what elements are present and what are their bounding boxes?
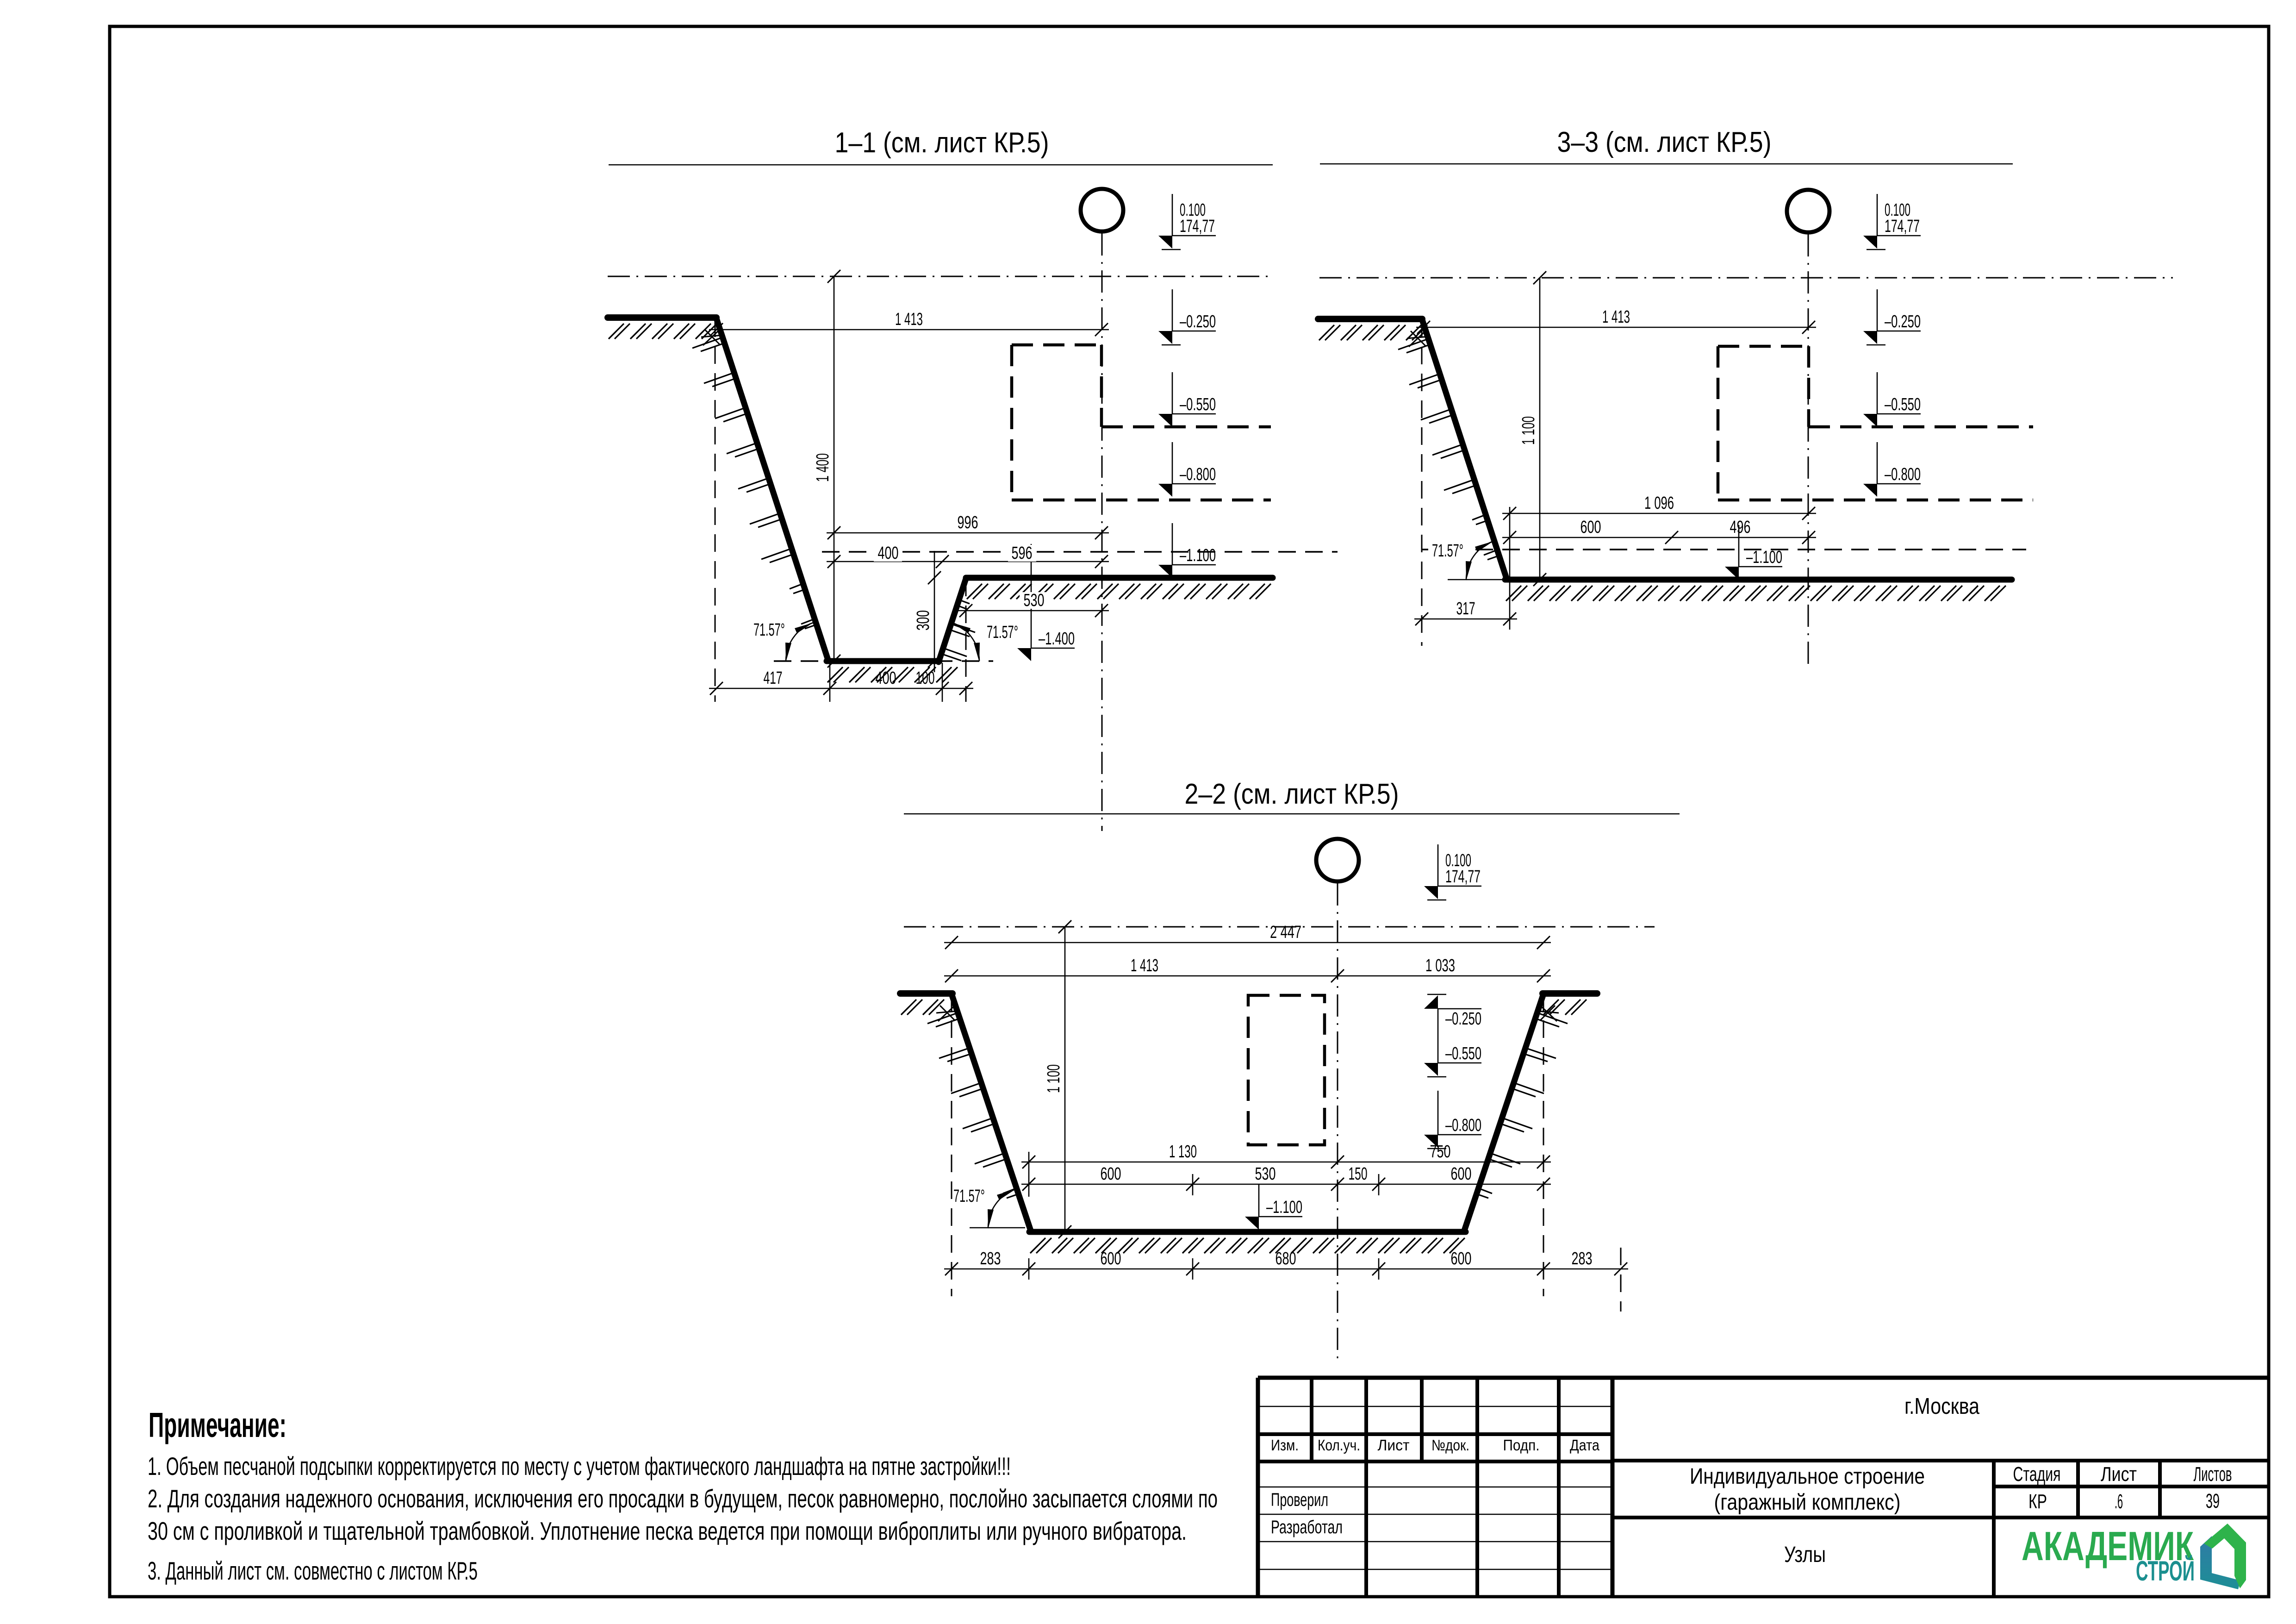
svg-text:2–2 (см. лист КР.5): 2–2 (см. лист КР.5) [1185, 778, 1399, 810]
svg-text:400: 400 [876, 668, 896, 688]
svg-text:Дата: Дата [1570, 1437, 1600, 1454]
svg-text:0.100: 0.100 [1445, 851, 1471, 870]
svg-text:596: 596 [1012, 543, 1033, 563]
svg-text:283: 283 [1572, 1249, 1593, 1268]
svg-text:1. Объем песчаной подсыпки кор: 1. Объем песчаной подсыпки корректируетс… [148, 1452, 1011, 1480]
svg-text:–0.800: –0.800 [1885, 465, 1921, 484]
svg-text:71.57°: 71.57° [953, 1187, 985, 1206]
svg-text:680: 680 [1276, 1249, 1296, 1268]
svg-text:3–3 (см. лист КР.5): 3–3 (см. лист КР.5) [1557, 126, 1772, 158]
svg-text:2 447: 2 447 [1270, 923, 1301, 942]
svg-text:–0.800: –0.800 [1445, 1116, 1481, 1135]
svg-text:Подп.: Подп. [1503, 1437, 1540, 1454]
svg-text:–0.250: –0.250 [1180, 312, 1216, 331]
svg-text:–0.250: –0.250 [1885, 312, 1921, 331]
svg-text:30 см с проливкой и тщательной: 30 см с проливкой и тщательной трамбовко… [148, 1517, 1187, 1545]
svg-text:1 413: 1 413 [895, 310, 923, 329]
svg-text:600: 600 [1451, 1249, 1472, 1268]
svg-text:496: 496 [1730, 518, 1751, 537]
svg-text:600: 600 [1580, 518, 1601, 537]
svg-text:1 096: 1 096 [1644, 493, 1674, 513]
svg-text:71.57°: 71.57° [1432, 541, 1463, 561]
svg-text:–0.550: –0.550 [1445, 1044, 1481, 1063]
svg-text:100: 100 [916, 668, 935, 688]
svg-text:750: 750 [1430, 1142, 1451, 1162]
svg-text:№док.: №док. [1431, 1437, 1469, 1454]
svg-text:Примечание:: Примечание: [149, 1405, 286, 1444]
svg-text:150: 150 [1349, 1164, 1368, 1184]
svg-text:0.100: 0.100 [1885, 200, 1910, 220]
svg-text:–0.250: –0.250 [1445, 1009, 1481, 1029]
svg-text:Лист: Лист [2101, 1463, 2137, 1486]
svg-text:3. Данный лист см. совместно с: 3. Данный лист см. совместно с листом КР… [148, 1556, 478, 1585]
svg-text:530: 530 [1024, 591, 1045, 610]
svg-text:400: 400 [878, 543, 899, 563]
svg-text:–1.400: –1.400 [1039, 629, 1075, 649]
svg-text:996: 996 [958, 513, 978, 532]
svg-text:71.57°: 71.57° [753, 620, 785, 640]
svg-text:530: 530 [1255, 1164, 1276, 1184]
svg-text:600: 600 [1101, 1164, 1121, 1184]
svg-text:600: 600 [1101, 1249, 1121, 1268]
svg-text:–1.100: –1.100 [1746, 548, 1782, 567]
svg-text:417: 417 [764, 668, 783, 688]
svg-text:–1.100: –1.100 [1266, 1198, 1302, 1217]
svg-text:71.57°: 71.57° [987, 623, 1018, 642]
svg-text:1 400: 1 400 [813, 453, 833, 482]
svg-text:317: 317 [1456, 599, 1475, 618]
svg-text:–0.550: –0.550 [1180, 395, 1216, 414]
svg-text:КР: КР [2028, 1490, 2047, 1513]
svg-text:1 100: 1 100 [1044, 1064, 1064, 1093]
svg-text:–0.800: –0.800 [1180, 465, 1216, 484]
svg-text:г.Москва: г.Москва [1904, 1394, 1980, 1419]
svg-text:1 413: 1 413 [1131, 956, 1158, 975]
svg-text:Разработал: Разработал [1271, 1517, 1343, 1537]
svg-text:2. Для создания надежного осно: 2. Для создания надежного основания, иск… [148, 1484, 1218, 1513]
svg-text:(гаражный комплекс): (гаражный комплекс) [1714, 1490, 1901, 1515]
svg-text:1 130: 1 130 [1169, 1142, 1197, 1162]
svg-text:1 033: 1 033 [1425, 956, 1455, 975]
svg-text:–1.100: –1.100 [1180, 546, 1216, 565]
svg-text:–0.550: –0.550 [1885, 395, 1921, 414]
svg-text:Изм.: Изм. [1271, 1437, 1299, 1454]
svg-text:Лист: Лист [1378, 1437, 1410, 1454]
svg-text:283: 283 [980, 1249, 1001, 1268]
svg-text:1 413: 1 413 [1602, 307, 1630, 327]
svg-text:Проверил: Проверил [1271, 1490, 1328, 1510]
svg-text:0.100: 0.100 [1180, 200, 1206, 220]
svg-text:СТРОЙ: СТРОЙ [2136, 1555, 2195, 1587]
svg-text:300: 300 [914, 610, 933, 631]
svg-text:.6: .6 [2115, 1490, 2123, 1513]
svg-text:1–1 (см. лист КР.5): 1–1 (см. лист КР.5) [835, 127, 1049, 159]
svg-text:600: 600 [1451, 1164, 1472, 1184]
svg-text:Кол.уч.: Кол.уч. [1318, 1437, 1360, 1454]
svg-text:Стадия: Стадия [2013, 1463, 2061, 1486]
svg-text:Листов: Листов [2194, 1463, 2232, 1486]
svg-text:39: 39 [2206, 1490, 2220, 1512]
svg-text:Узлы: Узлы [1784, 1543, 1826, 1567]
svg-text:Индивидуальное строение: Индивидуальное строение [1690, 1464, 1925, 1489]
svg-text:1 100: 1 100 [1519, 416, 1538, 445]
